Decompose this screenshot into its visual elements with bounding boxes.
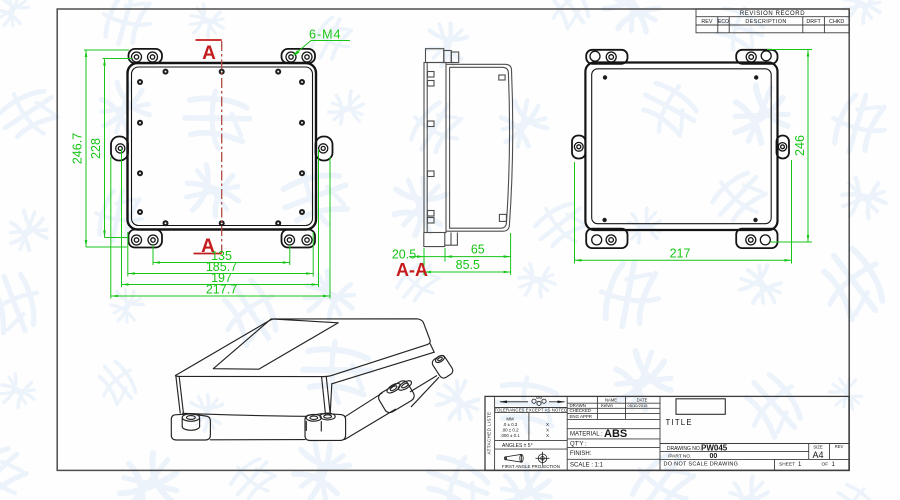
svg-text:ABS: ABS [604, 428, 627, 440]
svg-text:A: A [202, 43, 216, 64]
svg-text:85.5: 85.5 [456, 258, 480, 272]
svg-text:246.7: 246.7 [71, 133, 85, 164]
svg-text:Kelvin: Kelvin [601, 403, 614, 408]
svg-text:A4: A4 [812, 450, 823, 460]
svg-text:X: X [546, 433, 549, 438]
svg-text:DATE: DATE [637, 398, 648, 403]
svg-text:ATTACHED LISTE: ATTACHED LISTE [487, 412, 492, 455]
svg-text:65: 65 [471, 243, 485, 257]
svg-text:MATERIAL :: MATERIAL : [570, 432, 603, 438]
svg-text:DO NOT SCALE DRAWING: DO NOT SCALE DRAWING [664, 462, 739, 468]
svg-text:CHKD: CHKD [829, 19, 844, 25]
svg-text:217.7: 217.7 [206, 283, 237, 297]
svg-text:00: 00 [710, 453, 718, 460]
svg-text:246: 246 [793, 135, 807, 156]
svg-text:SHEET: SHEET [779, 461, 795, 467]
svg-text:ECO: ECO [718, 19, 729, 25]
svg-text:6-M4: 6-M4 [309, 28, 341, 42]
svg-text:QT'Y :: QT'Y : [570, 441, 587, 447]
svg-text:REV: REV [701, 19, 712, 25]
svg-text:ENG APPR: ENG APPR [570, 414, 592, 419]
svg-text:/PART NO.: /PART NO. [668, 453, 691, 459]
svg-text:SIZE: SIZE [813, 444, 823, 449]
svg-text:DRFT: DRFT [806, 19, 821, 25]
svg-text:CHECKED: CHECKED [570, 408, 591, 413]
svg-text:SCALE : 1:1: SCALE : 1:1 [570, 462, 604, 468]
svg-text:OF: OF [822, 461, 829, 467]
svg-text:MM: MM [536, 396, 542, 400]
svg-text:ANGLES ± 5°: ANGLES ± 5° [502, 443, 533, 449]
svg-text:MM: MM [506, 417, 514, 422]
svg-text:A-A: A-A [396, 260, 428, 280]
svg-text:FIRST ANGLE PROJECTION: FIRST ANGLE PROJECTION [502, 464, 560, 469]
svg-text:217: 217 [670, 247, 691, 261]
svg-text:.000 ± 0.1: .000 ± 0.1 [500, 433, 520, 438]
svg-text:TITLE: TITLE [666, 418, 693, 427]
svg-text:PW045: PW045 [701, 444, 728, 453]
svg-text:NAME: NAME [605, 398, 617, 403]
svg-text:X: X [546, 422, 549, 427]
svg-text:X: X [546, 428, 549, 433]
svg-text:REV: REV [835, 444, 844, 449]
svg-text:.00 ± 0.2: .00 ± 0.2 [501, 428, 519, 433]
svg-text:228: 228 [89, 138, 103, 159]
svg-text:05/10/2015: 05/10/2015 [628, 403, 649, 408]
svg-text:.0 ± 0.3: .0 ± 0.3 [503, 422, 518, 427]
svg-text:TOLERANCES EXCEPT AS NOTED: TOLERANCES EXCEPT AS NOTED [494, 408, 567, 413]
svg-text:DRAWING NO.: DRAWING NO. [667, 446, 701, 452]
svg-text:FINISH:: FINISH: [570, 451, 592, 457]
svg-text:REVISION RECORD: REVISION RECORD [740, 11, 805, 17]
svg-text:DESCRIPTION: DESCRIPTION [745, 19, 786, 25]
